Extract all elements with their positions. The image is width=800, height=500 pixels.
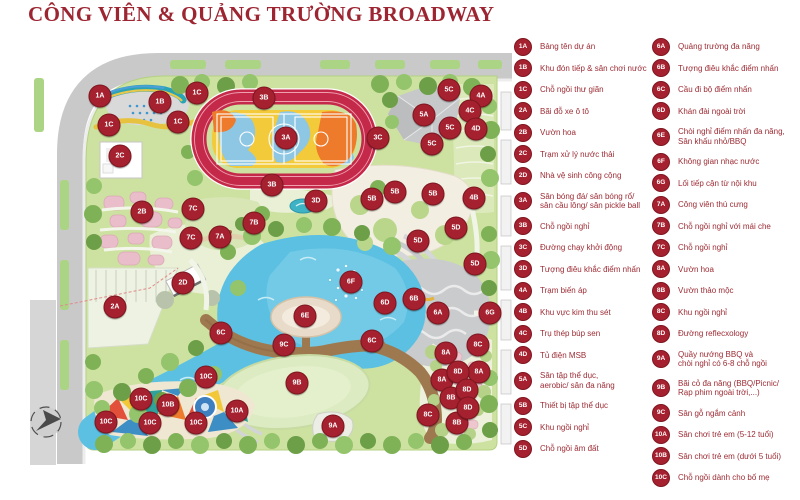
map-marker-1C: 1C bbox=[98, 114, 121, 137]
legend-item-badge: 6C bbox=[652, 81, 670, 99]
map-marker-1C: 1C bbox=[186, 82, 209, 105]
map-marker-10B: 10B bbox=[157, 394, 180, 417]
legend-item: 7ACông viên thú cưng bbox=[652, 194, 798, 216]
map-marker-3C: 3C bbox=[367, 127, 390, 150]
legend-item-label: Khu ngồi nghỉ bbox=[540, 423, 589, 433]
legend-item-badge: 9A bbox=[652, 350, 670, 368]
legend-item-badge: 10A bbox=[652, 426, 670, 444]
legend-item-badge: 5B bbox=[514, 397, 532, 415]
map-marker-6G: 6G bbox=[479, 302, 502, 325]
legend-item-badge: 8A bbox=[652, 260, 670, 278]
legend-item-label: Chỗ ngồi nghỉ với mái che bbox=[678, 222, 771, 232]
map-marker-3B: 3B bbox=[253, 87, 276, 110]
legend-item-label: Công viên thú cưng bbox=[678, 200, 748, 210]
legend-item-badge: 9B bbox=[652, 379, 670, 397]
map-marker-8D: 8D bbox=[457, 397, 480, 420]
legend-item: 2BVườn hoa bbox=[514, 122, 650, 144]
map-marker-8C: 8C bbox=[417, 404, 440, 427]
legend-item-badge: 4C bbox=[514, 325, 532, 343]
map-marker-7B: 7B bbox=[243, 212, 266, 235]
legend-item: 5DChỗ ngồi âm đất bbox=[514, 438, 650, 460]
legend-item: 2ABãi đỗ xe ô tô bbox=[514, 101, 650, 123]
legend-item-label: Khu ngồi nghỉ bbox=[678, 308, 727, 318]
legend-item: 7BChỗ ngồi nghỉ với mái che bbox=[652, 216, 798, 238]
map-marker-6D: 6D bbox=[374, 292, 397, 315]
legend-item: 6EChòi nghỉ điểm nhấn đa năng, Sân khấu … bbox=[652, 122, 798, 151]
map-marker-3A: 3A bbox=[275, 127, 298, 150]
legend-item-badge: 8B bbox=[652, 282, 670, 300]
map-marker-1B: 1B bbox=[149, 91, 172, 114]
map-marker-6C: 6C bbox=[210, 322, 233, 345]
legend-item-badge: 6D bbox=[652, 102, 670, 120]
legend-item: 1ABảng tên dự án bbox=[514, 36, 650, 58]
legend-item-label: Chỗ ngồi nghỉ bbox=[678, 243, 727, 253]
legend-item-badge: 6F bbox=[652, 153, 670, 171]
map-marker-6F: 6F bbox=[340, 271, 363, 294]
legend-item-label: Bãi cỏ đa năng (BBQ/Picnic/ Rạp phim ngo… bbox=[678, 379, 779, 398]
legend-column-1: 1ABảng tên dự án1BKhu đón tiếp & sân chơ… bbox=[514, 36, 650, 460]
legend-item-label: Trạm biến áp bbox=[540, 286, 587, 296]
legend-item-badge: 4D bbox=[514, 346, 532, 364]
map-marker-10C: 10C bbox=[139, 412, 162, 435]
legend-item-badge: 2B bbox=[514, 124, 532, 142]
legend-item-badge: 8C bbox=[652, 303, 670, 321]
map-marker-2D: 2D bbox=[172, 272, 195, 295]
legend-item: 9BBãi cỏ đa năng (BBQ/Picnic/ Rạp phim n… bbox=[652, 374, 798, 403]
map-marker-2B: 2B bbox=[131, 201, 154, 224]
map-marker-6A: 6A bbox=[427, 302, 450, 325]
map-marker-5C: 5C bbox=[439, 117, 462, 140]
legend-item: 4CTrụ thép búp sen bbox=[514, 323, 650, 345]
legend-item-label: Chỗ ngồi nghỉ bbox=[540, 222, 589, 232]
legend-item: 5BThiết bị tập thể dục bbox=[514, 395, 650, 417]
legend-item: 10ASân chơi trẻ em (5-12 tuổi) bbox=[652, 424, 798, 446]
legend-item: 6GLối tiếp cận từ nội khu bbox=[652, 173, 798, 195]
map-marker-10C: 10C bbox=[195, 366, 218, 389]
map-marker-6C: 6C bbox=[361, 330, 384, 353]
legend-item: 9AQuầy nướng BBQ và chòi nghỉ có 6-8 chỗ… bbox=[652, 345, 798, 374]
legend-item-label: Đường chạy khởi động bbox=[540, 243, 622, 253]
legend-column-2: 6AQuảng trường đa năng6BTượng điêu khắc … bbox=[652, 36, 798, 489]
legend-item-label: Cầu đi bộ điểm nhấn bbox=[678, 85, 752, 95]
map-marker-4B: 4B bbox=[463, 187, 486, 210]
legend-item-badge: 3D bbox=[514, 260, 532, 278]
map-marker-9C: 9C bbox=[273, 334, 296, 357]
legend-item-badge: 2A bbox=[514, 102, 532, 120]
legend-item-label: Sân gỗ ngắm cảnh bbox=[678, 409, 745, 419]
legend-item-label: Chỗ ngồi dành cho bố mẹ bbox=[678, 473, 770, 483]
legend-item-label: Bãi đỗ xe ô tô bbox=[540, 107, 589, 117]
legend-item-label: Chỗ ngồi thư giãn bbox=[540, 85, 604, 95]
legend-item-label: Bảng tên dự án bbox=[540, 42, 595, 52]
legend-item: 3BChỗ ngồi nghỉ bbox=[514, 216, 650, 238]
legend-item-label: Sân chơi trẻ em (dưới 5 tuổi) bbox=[678, 452, 781, 462]
legend-item-label: Quầy nướng BBQ và chòi nghỉ có 6-8 chỗ n… bbox=[678, 350, 767, 369]
legend-item-badge: 7A bbox=[652, 196, 670, 214]
legend-item-badge: 5C bbox=[514, 418, 532, 436]
map-marker-8C: 8C bbox=[467, 334, 490, 357]
legend-item: 5CKhu ngồi nghỉ bbox=[514, 417, 650, 439]
map-marker-3D: 3D bbox=[305, 190, 328, 213]
map-marker-7C: 7C bbox=[180, 227, 203, 250]
legend-item-badge: 10C bbox=[652, 469, 670, 487]
legend-item: 6AQuảng trường đa năng bbox=[652, 36, 798, 58]
legend-item: 10BSân chơi trẻ em (dưới 5 tuổi) bbox=[652, 446, 798, 468]
map-marker-5D: 5D bbox=[445, 217, 468, 240]
map-marker-10C: 10C bbox=[130, 388, 153, 411]
legend-item-badge: 2C bbox=[514, 145, 532, 163]
map-marker-1A: 1A bbox=[89, 85, 112, 108]
map-marker-9B: 9B bbox=[286, 372, 309, 395]
map-marker-7C: 7C bbox=[182, 198, 205, 221]
legend-item: 6DKhán đài ngoài trời bbox=[652, 101, 798, 123]
legend-item-label: Lối tiếp cận từ nội khu bbox=[678, 179, 757, 189]
map-marker-10A: 10A bbox=[226, 400, 249, 423]
legend-item-badge: 1C bbox=[514, 81, 532, 99]
legend-item-label: Trụ thép búp sen bbox=[540, 329, 600, 339]
legend-item-label: Sân tập thể dục, aerobic/ sân đa năng bbox=[540, 371, 615, 390]
legend-item-badge: 3C bbox=[514, 239, 532, 257]
legend-item-label: Tủ điện MSB bbox=[540, 351, 586, 361]
legend-item: 3DTượng điêu khắc điểm nhấn bbox=[514, 259, 650, 281]
legend-item: 8BVườn thảo mộc bbox=[652, 280, 798, 302]
map-marker-9A: 9A bbox=[322, 415, 345, 438]
map-marker-2C: 2C bbox=[109, 145, 132, 168]
legend-item-badge: 5A bbox=[514, 372, 532, 390]
map-marker-4D: 4D bbox=[465, 118, 488, 141]
legend-item-label: Khán đài ngoài trời bbox=[678, 107, 746, 117]
legend-item: 4DTủ điện MSB bbox=[514, 345, 650, 367]
legend-item: 7CChỗ ngồi nghỉ bbox=[652, 237, 798, 259]
map-marker-5A: 5A bbox=[413, 104, 436, 127]
legend-item-badge: 1A bbox=[514, 38, 532, 56]
map-marker-1C: 1C bbox=[167, 111, 190, 134]
legend-item-badge: 8D bbox=[652, 325, 670, 343]
legend-item: 2CTrạm xử lý nước thải bbox=[514, 144, 650, 166]
legend-item: 5ASân tập thể dục, aerobic/ sân đa năng bbox=[514, 366, 650, 395]
legend-item-label: Thiết bị tập thể dục bbox=[540, 401, 608, 411]
map-marker-5D: 5D bbox=[464, 253, 487, 276]
legend-item-badge: 6E bbox=[652, 128, 670, 146]
legend-item-badge: 2D bbox=[514, 167, 532, 185]
map-marker-5C: 5C bbox=[421, 133, 444, 156]
legend-item-label: Tượng điêu khắc điểm nhấn bbox=[540, 265, 640, 275]
legend-item: 4BKhu vực kim thu sét bbox=[514, 302, 650, 324]
legend-item: 9CSân gỗ ngắm cảnh bbox=[652, 403, 798, 425]
legend-item-badge: 6A bbox=[652, 38, 670, 56]
legend-item-badge: 7C bbox=[652, 239, 670, 257]
legend-item: 2DNhà vệ sinh công cộng bbox=[514, 165, 650, 187]
legend-item-label: Không gian nhạc nước bbox=[678, 157, 759, 167]
legend-item: 10CChỗ ngồi dành cho bố mẹ bbox=[652, 467, 798, 489]
legend-item: 1BKhu đón tiếp & sân chơi nước bbox=[514, 58, 650, 80]
legend-item-label: Sân bóng đá/ sân bóng rổ/ sân cầu lông/ … bbox=[540, 192, 640, 211]
map-marker-5C: 5C bbox=[438, 79, 461, 102]
map-marker-6B: 6B bbox=[403, 288, 426, 311]
legend-item: 6BTượng điêu khắc điểm nhấn bbox=[652, 58, 798, 80]
legend-item: 8CKhu ngồi nghỉ bbox=[652, 302, 798, 324]
legend-item-badge: 9C bbox=[652, 404, 670, 422]
legend-item: 6CCầu đi bộ điểm nhấn bbox=[652, 79, 798, 101]
legend-item-label: Tượng điêu khắc điểm nhấn bbox=[678, 64, 778, 74]
legend-item-label: Sân chơi trẻ em (5-12 tuổi) bbox=[678, 430, 774, 440]
legend-item-label: Trạm xử lý nước thải bbox=[540, 150, 614, 160]
legend-item-label: Quảng trường đa năng bbox=[678, 42, 760, 52]
map-marker-10C: 10C bbox=[95, 411, 118, 434]
map-marker-2A: 2A bbox=[104, 296, 127, 319]
legend-item-badge: 5D bbox=[514, 440, 532, 458]
map-marker-5B: 5B bbox=[361, 188, 384, 211]
legend-item: 1CChỗ ngồi thư giãn bbox=[514, 79, 650, 101]
legend-item: 8AVườn hoa bbox=[652, 259, 798, 281]
legend-item-label: Vườn hoa bbox=[678, 265, 714, 275]
legend-item-label: Khu đón tiếp & sân chơi nước bbox=[540, 64, 647, 74]
map-marker-6E: 6E bbox=[294, 305, 317, 328]
map-marker-5B: 5B bbox=[384, 181, 407, 204]
legend-item-label: Chòi nghỉ điểm nhấn đa năng, Sân khấu nh… bbox=[678, 127, 785, 146]
legend-item-badge: 7B bbox=[652, 217, 670, 235]
legend-item-label: Khu vực kim thu sét bbox=[540, 308, 611, 318]
legend-item-label: Đường reflecxology bbox=[678, 329, 748, 339]
legend-item-badge: 10B bbox=[652, 447, 670, 465]
legend-item: 6FKhông gian nhạc nước bbox=[652, 151, 798, 173]
legend-item-badge: 4B bbox=[514, 303, 532, 321]
legend-item: 8DĐường reflecxology bbox=[652, 323, 798, 345]
map-marker-5D: 5D bbox=[407, 230, 430, 253]
legend-item-label: Vườn thảo mộc bbox=[678, 286, 734, 296]
map-marker-3B: 3B bbox=[261, 174, 284, 197]
legend-item-label: Vườn hoa bbox=[540, 128, 576, 138]
legend-item-badge: 3A bbox=[514, 192, 532, 210]
legend-item-badge: 6G bbox=[652, 174, 670, 192]
legend-item-badge: 3B bbox=[514, 217, 532, 235]
legend-item: 3CĐường chạy khởi động bbox=[514, 237, 650, 259]
map-marker-5B: 5B bbox=[422, 183, 445, 206]
legend-item-badge: 4A bbox=[514, 282, 532, 300]
legend-item-label: Chỗ ngồi âm đất bbox=[540, 444, 599, 454]
legend-item: 3ASân bóng đá/ sân bóng rổ/ sân cầu lông… bbox=[514, 187, 650, 216]
legend-item: 4ATrạm biến áp bbox=[514, 280, 650, 302]
legend-item-label: Nhà vệ sinh công cộng bbox=[540, 171, 621, 181]
map-marker-7A: 7A bbox=[209, 226, 232, 249]
legend-item-badge: 6B bbox=[652, 59, 670, 77]
legend-item-badge: 1B bbox=[514, 59, 532, 77]
map-marker-10C: 10C bbox=[185, 412, 208, 435]
